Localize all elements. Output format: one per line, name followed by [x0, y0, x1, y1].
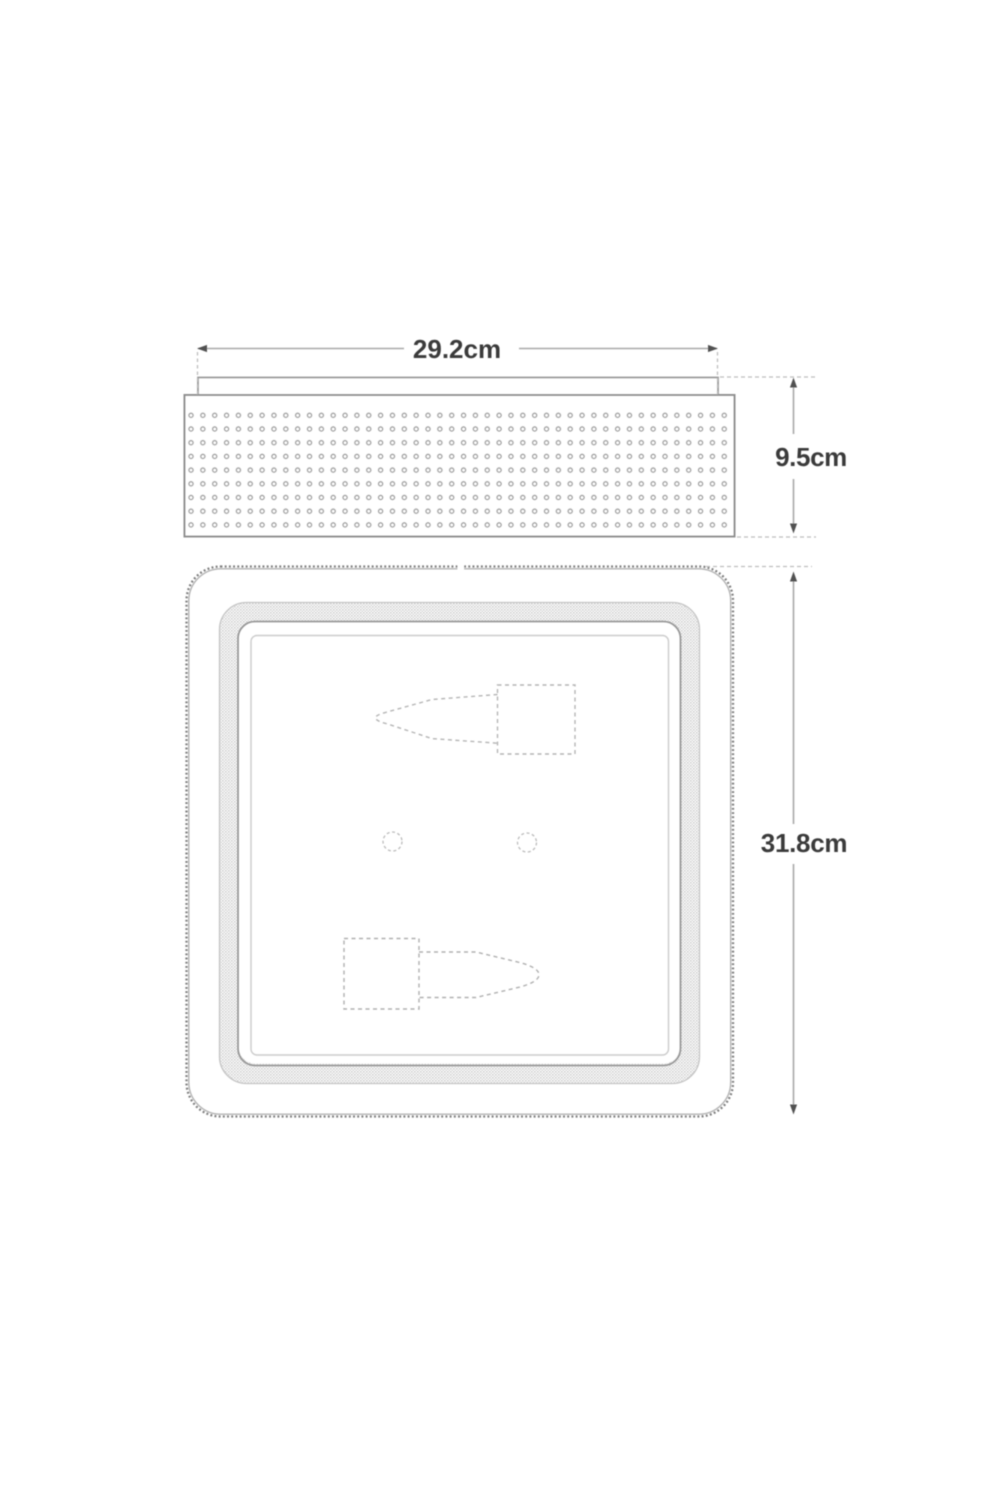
svg-text:31.8cm: 31.8cm	[761, 828, 847, 858]
svg-text:9.5cm: 9.5cm	[775, 442, 847, 472]
svg-text:29.2cm: 29.2cm	[413, 334, 501, 364]
